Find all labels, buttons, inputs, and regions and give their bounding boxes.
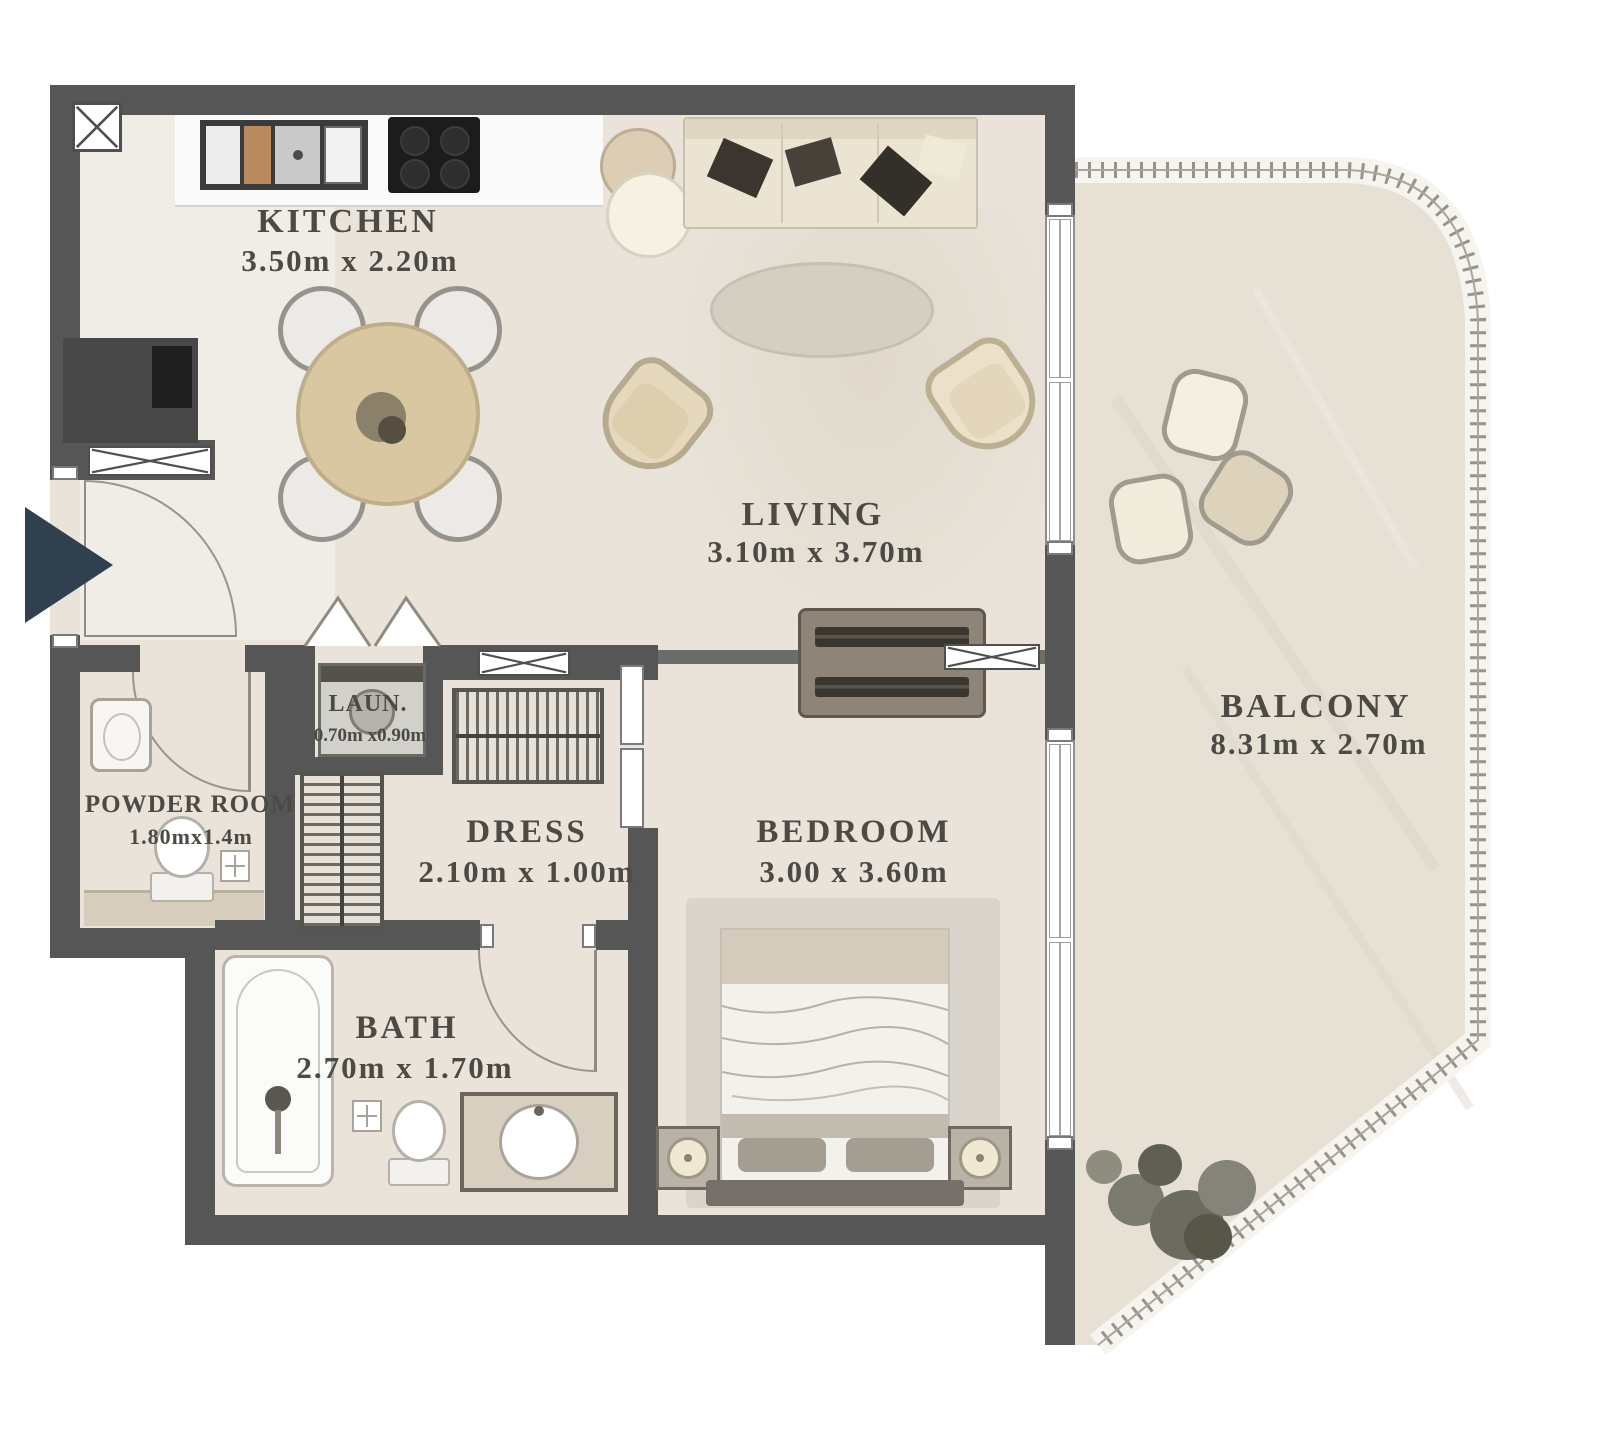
side-table-2 bbox=[606, 172, 692, 258]
living-rug bbox=[710, 262, 934, 358]
window-marker-left bbox=[88, 446, 212, 476]
bedroom-dims: 3.00 x 3.60m bbox=[759, 856, 948, 887]
wall-left-lower bbox=[50, 635, 80, 928]
dining-centerpiece-inner bbox=[378, 416, 406, 444]
jamb-living-glass-bottom bbox=[1047, 541, 1073, 555]
floor-plan: KITCHEN 3.50m x 2.20m LIVING 3.10m x 3.7… bbox=[0, 0, 1600, 1445]
bedroom-slider-panel-2 bbox=[620, 748, 644, 828]
kitchen-sink bbox=[275, 126, 319, 184]
laundry-dims: 0.70m x0.90m bbox=[314, 726, 426, 745]
utility-shaft-inner bbox=[152, 346, 192, 408]
powder-accessory bbox=[220, 850, 250, 882]
bed-mattress bbox=[720, 928, 950, 1184]
bed-headboard bbox=[706, 1180, 964, 1206]
dress-closet-horizontal bbox=[452, 688, 604, 784]
jamb-bedroom-glass-bottom bbox=[1047, 1136, 1073, 1150]
powder-basin bbox=[90, 698, 152, 772]
bath-vanity bbox=[460, 1092, 618, 1192]
kitchen-fridge bbox=[324, 126, 362, 184]
bed-pillow-right bbox=[846, 1138, 934, 1172]
wall-powder-top-right bbox=[245, 645, 295, 672]
jamb-bath-door-left bbox=[480, 924, 494, 948]
kitchen-appliance-unit bbox=[200, 120, 368, 190]
wall-top bbox=[50, 85, 1075, 115]
bedroom-balcony-sliding-door bbox=[1045, 740, 1075, 1140]
jamb-entry-top bbox=[52, 466, 78, 480]
living-balcony-sliding-door bbox=[1045, 215, 1075, 545]
jamb-living-glass-top bbox=[1047, 203, 1073, 217]
wall-bedroom-door-top bbox=[628, 645, 658, 665]
jamb-bath-door-right bbox=[582, 924, 596, 948]
balcony-dims: 8.31m x 2.70m bbox=[1210, 728, 1427, 759]
powder-room-label: POWDER ROOM bbox=[85, 792, 295, 817]
window-marker-living bbox=[944, 644, 1040, 670]
dress-dims: 2.10m x 1.00m bbox=[418, 856, 635, 887]
sofa-pillow bbox=[785, 137, 842, 187]
jamb-entry-bottom bbox=[52, 634, 78, 648]
laundry-bifold-doors bbox=[300, 594, 445, 648]
bath-label: BATH bbox=[355, 1012, 458, 1045]
balcony-label: BALCONY bbox=[1220, 690, 1411, 724]
wall-powder-top-left bbox=[80, 645, 140, 672]
bath-dims: 2.70m x 1.70m bbox=[296, 1052, 513, 1083]
sofa-pillow bbox=[707, 138, 773, 198]
bathtub-drain bbox=[265, 1086, 291, 1112]
wall-right-upper bbox=[1045, 85, 1075, 215]
balcony-pouf-2 bbox=[1105, 470, 1197, 568]
powder-room-dims: 1.80mx1.4m bbox=[129, 826, 253, 848]
bed-pillow-left bbox=[738, 1138, 826, 1172]
bath-toilet-tank bbox=[388, 1158, 450, 1186]
bedroom-slider-panel-1 bbox=[620, 665, 644, 745]
bath-accessory bbox=[352, 1100, 382, 1132]
jamb-bedroom-glass-top bbox=[1047, 728, 1073, 742]
wardrobe-vertical bbox=[300, 772, 384, 930]
wall-bath-left bbox=[185, 928, 215, 1245]
kitchen-label: KITCHEN bbox=[257, 205, 439, 239]
kitchen-dims: 3.50m x 2.20m bbox=[241, 245, 458, 276]
dress-label: DRESS bbox=[466, 816, 587, 849]
balcony-plant bbox=[1080, 1130, 1270, 1280]
wall-laundry-left bbox=[295, 645, 315, 775]
wall-right-lower bbox=[1045, 1140, 1075, 1345]
bedroom-label: BEDROOM bbox=[756, 816, 951, 849]
cooktop bbox=[388, 117, 480, 193]
bed-duvet-wrinkles bbox=[722, 986, 948, 1114]
cutting-board bbox=[244, 126, 271, 184]
sofa bbox=[683, 117, 978, 229]
wall-laundry-right bbox=[423, 645, 443, 775]
sofa-pillow bbox=[917, 134, 966, 179]
corner-column-marker bbox=[72, 102, 122, 152]
bath-toilet-bowl bbox=[392, 1100, 446, 1162]
wall-right-mid bbox=[1045, 545, 1075, 740]
bed-foot-fold bbox=[722, 930, 948, 984]
entry-arrow bbox=[25, 507, 113, 623]
living-dims: 3.10m x 3.70m bbox=[707, 536, 924, 567]
wall-bath-bedroom bbox=[628, 920, 658, 1245]
laundry-label: LAUN. bbox=[328, 692, 407, 716]
window-marker-dress bbox=[478, 650, 570, 676]
living-label: LIVING bbox=[742, 498, 885, 532]
